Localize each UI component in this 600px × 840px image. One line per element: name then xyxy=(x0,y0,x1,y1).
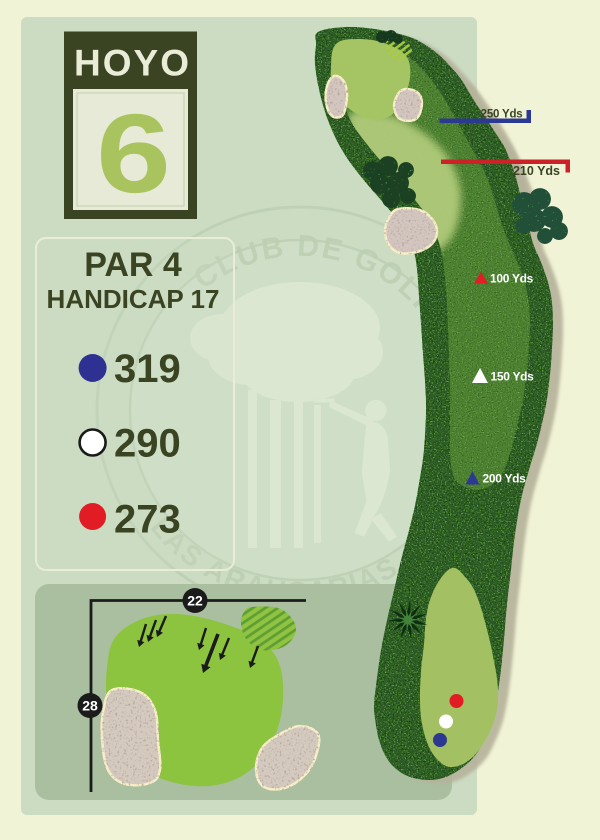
svg-text:28: 28 xyxy=(82,698,98,714)
svg-text:HOYO: HOYO xyxy=(74,43,191,84)
svg-text:200 Yds: 200 Yds xyxy=(483,472,527,486)
svg-text:150 Yds: 150 Yds xyxy=(491,370,535,384)
svg-text:273: 273 xyxy=(114,498,181,542)
svg-text:100 Yds: 100 Yds xyxy=(490,272,534,286)
svg-text:HANDICAP 17: HANDICAP 17 xyxy=(47,284,220,314)
svg-text:PAR 4: PAR 4 xyxy=(84,246,182,284)
svg-text:290: 290 xyxy=(114,422,181,466)
svg-text:22: 22 xyxy=(187,593,203,609)
svg-text:250 Yds: 250 Yds xyxy=(481,109,523,121)
svg-text:319: 319 xyxy=(114,347,181,391)
svg-text:6: 6 xyxy=(96,92,171,217)
svg-text:210 Yds: 210 Yds xyxy=(513,164,560,178)
